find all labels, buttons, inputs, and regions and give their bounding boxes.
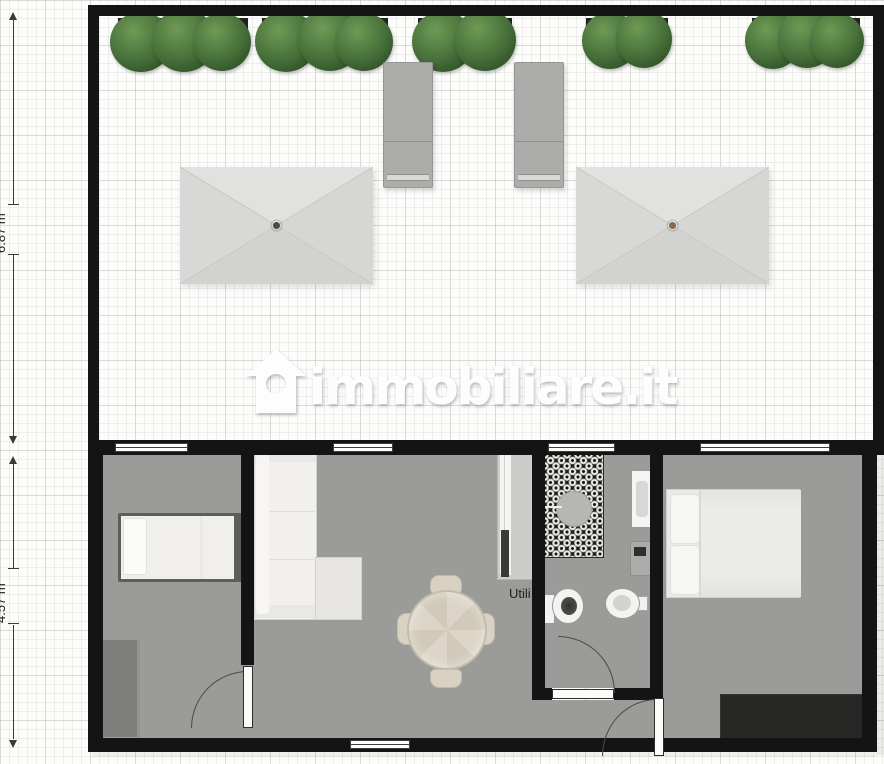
pillow xyxy=(670,545,700,595)
awning-center-pole xyxy=(273,222,280,229)
lounger-fold-line xyxy=(384,141,432,142)
shower-arm xyxy=(545,506,562,508)
dimension-tick xyxy=(8,204,19,205)
lounger-fold-line xyxy=(515,141,563,142)
shower-tray xyxy=(556,491,592,527)
drop-shadow xyxy=(877,455,884,755)
apartment-wall-bottom xyxy=(88,738,877,752)
utility-room-label: Utili xyxy=(509,586,531,601)
single-bed xyxy=(118,513,242,582)
wall-living-bathroom xyxy=(532,455,545,700)
bidet-bowl xyxy=(613,595,631,611)
window-bedroom1 xyxy=(115,443,188,452)
shrub-plant xyxy=(454,9,516,71)
shrub-plant xyxy=(810,13,864,68)
immobiliare-watermark: immobiliare.it xyxy=(245,348,676,414)
bidet xyxy=(605,588,640,619)
terrace-wall-left xyxy=(88,5,99,455)
double-bed xyxy=(666,489,800,598)
apartment-wall-left xyxy=(88,440,103,752)
terrace-wall-top xyxy=(88,5,884,16)
sun-lounger xyxy=(514,62,564,188)
cushion-seam xyxy=(270,511,314,512)
dimension-tick xyxy=(8,568,19,569)
dimension-label-terrace: 6.87 m xyxy=(0,213,7,253)
chaise-ottoman xyxy=(315,557,362,620)
window-bedroom2 xyxy=(700,443,830,452)
dimension-line-terrace-lower xyxy=(13,255,14,437)
lounger-foot-bar xyxy=(518,174,560,181)
dimension-arrow-top xyxy=(9,12,17,20)
patio-awning-right xyxy=(576,167,769,284)
dining-chair xyxy=(430,669,462,688)
terrace-wall-right xyxy=(873,5,884,455)
shrub-plant xyxy=(616,10,672,68)
wall-bedroom1-living xyxy=(241,455,254,665)
rug xyxy=(720,694,868,740)
sun-lounger xyxy=(383,62,433,188)
tv-panel xyxy=(501,530,509,577)
dimension-arrow-bottom xyxy=(9,436,17,444)
window-living-south xyxy=(350,740,410,749)
apartment-wall-right xyxy=(862,440,877,752)
wall-bathroom-bedroom2 xyxy=(650,455,663,700)
floor-plan-canvas: 6.87 m 4.57 m xyxy=(0,0,884,764)
window-bathroom xyxy=(548,443,615,452)
lounger-foot-bar xyxy=(387,174,429,181)
immobiliare-house-icon xyxy=(245,348,307,414)
drop-shadow xyxy=(92,752,877,757)
dimension-label-apartment: 4.57 m xyxy=(0,583,7,623)
sink-basin xyxy=(636,481,648,517)
awning-center-pole xyxy=(669,222,676,229)
dining-table xyxy=(407,590,487,670)
shelf-item xyxy=(634,547,646,556)
shrub-plant xyxy=(193,13,251,71)
sofa xyxy=(254,448,317,620)
duvet xyxy=(699,490,801,597)
toilet xyxy=(552,588,584,624)
dimension-arrow-bottom xyxy=(9,740,17,748)
toilet-bowl xyxy=(561,597,577,615)
door-leaf-bedroom2 xyxy=(654,698,664,756)
window-living xyxy=(333,443,393,452)
bathroom-wall-stub xyxy=(532,688,552,700)
sofa-backrest xyxy=(256,454,269,614)
dimension-tick xyxy=(8,623,19,624)
dimension-line-terrace xyxy=(13,20,14,204)
door-leaf-bathroom xyxy=(552,689,614,699)
pillow xyxy=(670,494,700,544)
patio-awning-left xyxy=(180,167,373,284)
door-leaf-bedroom1 xyxy=(243,666,253,728)
watermark-brand-text: immobiliare.it xyxy=(309,362,676,412)
pillow xyxy=(123,518,147,575)
dimension-line-apartment-lower xyxy=(13,625,14,739)
cushion-seam xyxy=(270,559,314,560)
dimension-line-apartment xyxy=(13,463,14,568)
